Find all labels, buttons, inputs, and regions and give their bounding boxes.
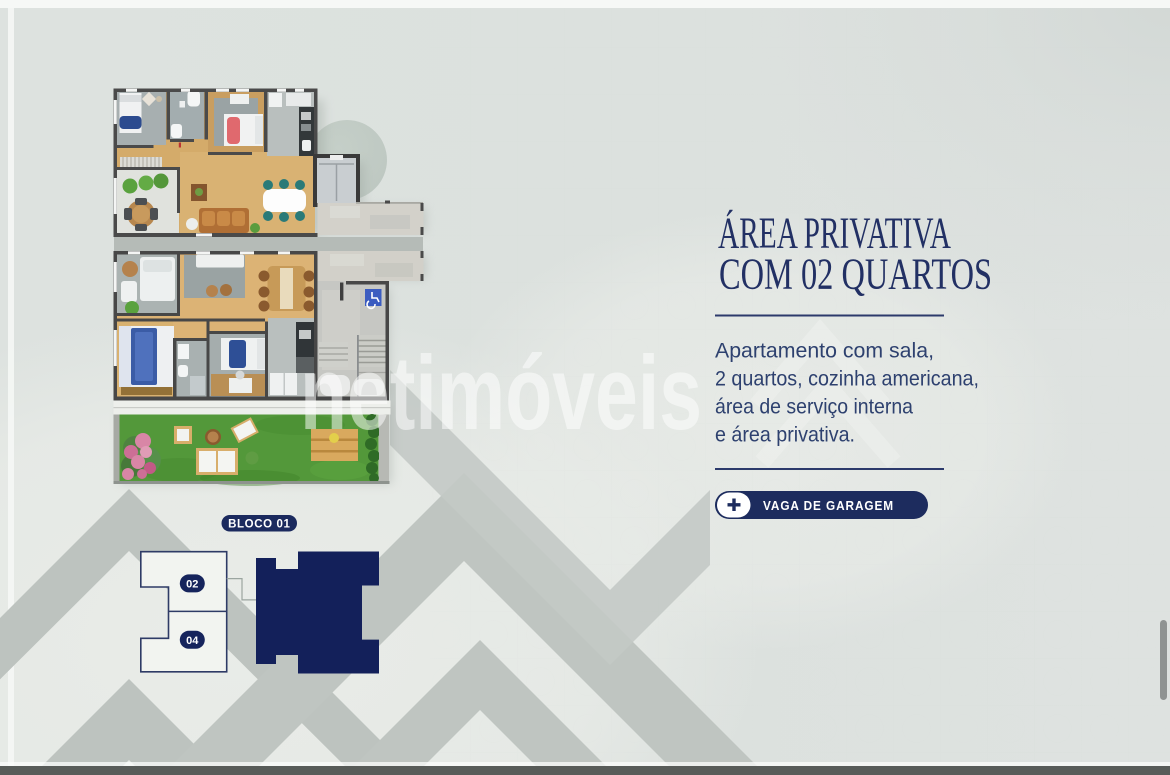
svg-text:02: 02 [186,578,198,590]
svg-text:e área privativa.: e área privativa. [715,423,855,447]
svg-text:2 quartos, cozinha americana,: 2 quartos, cozinha americana, [715,367,979,391]
svg-text:COM 02 QUARTOS: COM 02 QUARTOS [719,250,992,299]
svg-text:netimóveis: netimóveis [300,335,702,452]
svg-text:Apartamento com sala,: Apartamento com sala, [715,339,934,363]
svg-text:04: 04 [186,635,199,647]
svg-text:área de serviço interna: área de serviço interna [715,395,913,419]
svg-text:BLOCO 01: BLOCO 01 [228,518,290,530]
svg-text:VAGA DE GARAGEM: VAGA DE GARAGEM [763,498,894,513]
